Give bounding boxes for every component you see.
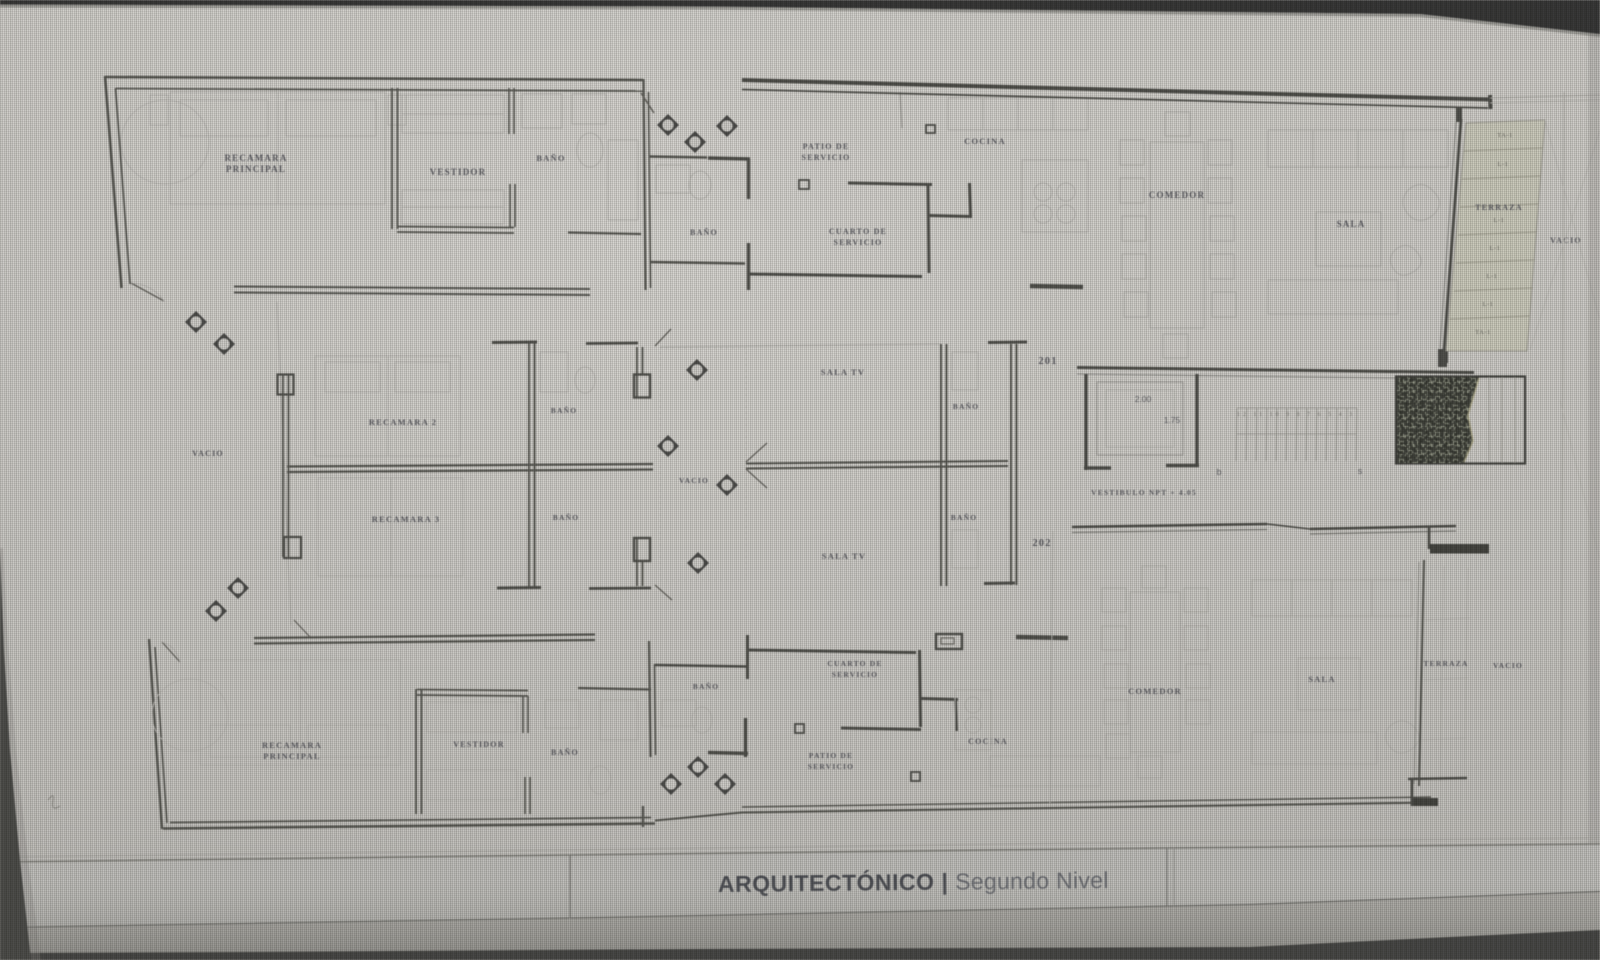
svg-text:BAÑO: BAÑO bbox=[951, 513, 977, 522]
svg-text:RECAMARA: RECAMARA bbox=[224, 153, 287, 163]
svg-text:VACIO: VACIO bbox=[192, 449, 224, 458]
svg-text:VESTIDOR: VESTIDOR bbox=[453, 740, 504, 749]
svg-text:L-1: L-1 bbox=[1483, 301, 1494, 308]
svg-text:VACIO: VACIO bbox=[679, 476, 709, 485]
svg-text:12 11 10 9 8 7 6 5 4 3: 12 11 10 9 8 7 6 5 4 3 bbox=[1237, 412, 1355, 418]
svg-text:RECAMARA: RECAMARA bbox=[262, 740, 322, 750]
svg-text:PATIO DE: PATIO DE bbox=[803, 142, 850, 151]
svg-text:SALA TV: SALA TV bbox=[822, 551, 866, 561]
svg-text:SERVICIO: SERVICIO bbox=[834, 238, 883, 247]
svg-text:BAÑO: BAÑO bbox=[551, 748, 579, 757]
svg-text:SERVICIO: SERVICIO bbox=[832, 670, 878, 679]
svg-text:VACIO: VACIO bbox=[1493, 661, 1523, 670]
svg-text:TA-1: TA-1 bbox=[1475, 329, 1491, 336]
svg-text:COMEDOR: COMEDOR bbox=[1149, 190, 1205, 200]
svg-text:BAÑO: BAÑO bbox=[693, 682, 719, 691]
svg-text:BAÑO: BAÑO bbox=[953, 402, 979, 411]
svg-text:TERRAZA: TERRAZA bbox=[1475, 203, 1523, 212]
svg-text:TERRAZA: TERRAZA bbox=[1423, 659, 1468, 668]
svg-text:201: 201 bbox=[1038, 356, 1057, 367]
svg-text:L-1: L-1 bbox=[1490, 245, 1501, 252]
svg-text:VESTIDOR: VESTIDOR bbox=[430, 167, 487, 177]
svg-text:L-1: L-1 bbox=[1487, 273, 1498, 280]
svg-text:SALA: SALA bbox=[1337, 219, 1366, 229]
svg-text:SALA: SALA bbox=[1308, 674, 1335, 684]
svg-text:TA-1: TA-1 bbox=[1497, 132, 1513, 139]
svg-text:COCINA: COCINA bbox=[968, 737, 1008, 746]
svg-text:L-1: L-1 bbox=[1498, 161, 1509, 168]
svg-text:PATIO DE: PATIO DE bbox=[809, 751, 854, 760]
svg-text:RECAMARA 2: RECAMARA 2 bbox=[369, 417, 437, 427]
svg-text:2.00: 2.00 bbox=[1135, 394, 1152, 404]
svg-text:BAÑO: BAÑO bbox=[553, 513, 579, 522]
svg-text:s: s bbox=[1358, 466, 1363, 476]
svg-text:L-1: L-1 bbox=[1494, 217, 1505, 224]
svg-text:1.75: 1.75 bbox=[1164, 415, 1181, 425]
svg-text:COMEDOR: COMEDOR bbox=[1128, 686, 1182, 696]
svg-text:VESTIBULO NPT + 4.05: VESTIBULO NPT + 4.05 bbox=[1091, 488, 1197, 497]
svg-text:CUARTO DE: CUARTO DE bbox=[829, 227, 887, 236]
svg-text:SERVICIO: SERVICIO bbox=[808, 762, 854, 771]
svg-text:BAÑO: BAÑO bbox=[551, 406, 577, 415]
svg-text:SALA TV: SALA TV bbox=[821, 367, 865, 377]
svg-text:RECAMARA 3: RECAMARA 3 bbox=[372, 514, 440, 524]
svg-text:BAÑO: BAÑO bbox=[536, 153, 565, 163]
svg-text:SERVICIO: SERVICIO bbox=[802, 153, 851, 162]
svg-text:BAÑO: BAÑO bbox=[690, 228, 718, 237]
svg-text:COCINA: COCINA bbox=[964, 136, 1006, 146]
svg-text:202: 202 bbox=[1032, 538, 1051, 549]
svg-text:PRINCIPAL: PRINCIPAL bbox=[226, 164, 286, 174]
svg-text:b: b bbox=[1216, 467, 1221, 477]
svg-text:CUARTO DE: CUARTO DE bbox=[827, 659, 882, 668]
svg-text:PRINCIPAL: PRINCIPAL bbox=[263, 751, 320, 761]
